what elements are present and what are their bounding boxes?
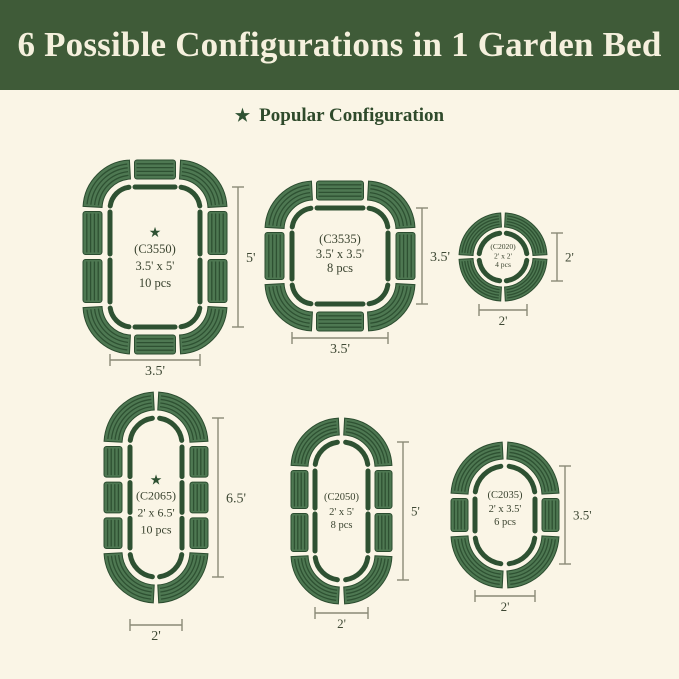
side-panel bbox=[190, 518, 208, 549]
width-dimension-label: 3.5' bbox=[330, 342, 350, 357]
side-panel bbox=[83, 212, 102, 255]
width-dimension-label: 2' bbox=[151, 629, 161, 644]
popular-legend-label: Popular Configuration bbox=[259, 105, 444, 127]
garden-bed-infographic: 6 Possible Configurations in 1 Garden Be… bbox=[0, 0, 679, 679]
bed-outline bbox=[475, 466, 535, 563]
side-panel bbox=[291, 514, 308, 552]
width-dimension-label: 2' bbox=[501, 599, 510, 614]
config-code-label: (C2020) bbox=[490, 242, 516, 251]
height-dimension-label: 5' bbox=[411, 504, 420, 519]
side-panel bbox=[104, 518, 122, 549]
config-diagram-c3535: 3.5'3.5'(C3535)3.5' x 3.5'8 pcs bbox=[250, 160, 465, 365]
height-dimension bbox=[397, 442, 409, 580]
corner-panel bbox=[83, 160, 130, 207]
side-panel bbox=[135, 160, 176, 179]
config-diagram-c2035: 3.5'2'(C2035)2' x 3.5'6 pcs bbox=[430, 438, 615, 616]
side-panel bbox=[104, 447, 122, 478]
config-code-label: (C2050) bbox=[324, 492, 360, 503]
popular-star-icon: ★ bbox=[149, 226, 162, 241]
side-panel bbox=[265, 233, 284, 280]
config-pieces-label: 8 pcs bbox=[331, 520, 353, 531]
config-code-label: (C2035) bbox=[488, 490, 524, 501]
height-dimension bbox=[232, 187, 244, 327]
corner-panel bbox=[83, 307, 130, 354]
width-dimension-label: 3.5' bbox=[145, 364, 165, 379]
side-panel bbox=[451, 499, 468, 532]
config-size-label: 2' x 3.5' bbox=[489, 504, 522, 515]
exploded-panels bbox=[451, 442, 559, 588]
corner-panel bbox=[180, 160, 227, 207]
width-dimension-label: 2' bbox=[499, 313, 508, 328]
side-panel bbox=[208, 212, 227, 255]
config-size-label: 2' x 5' bbox=[329, 507, 354, 518]
width-dimension-label: 2' bbox=[337, 616, 346, 631]
config-pieces-label: 10 pcs bbox=[139, 276, 171, 290]
corner-panel bbox=[368, 284, 415, 331]
height-dimension bbox=[551, 233, 563, 281]
side-panel bbox=[542, 499, 559, 532]
side-panel bbox=[208, 260, 227, 303]
height-dimension bbox=[416, 208, 428, 304]
header-banner: 6 Possible Configurations in 1 Garden Be… bbox=[0, 0, 679, 90]
side-panel bbox=[375, 471, 392, 509]
corner-panel bbox=[265, 284, 312, 331]
height-dimension bbox=[559, 466, 571, 564]
config-size-label: 2' x 6.5' bbox=[137, 506, 174, 520]
side-panel bbox=[317, 181, 364, 200]
config-pieces-label: 8 pcs bbox=[327, 261, 353, 275]
side-panel bbox=[291, 471, 308, 509]
config-diagram-c2065: 6.5'2'★(C2065)2' x 6.5'10 pcs bbox=[70, 390, 265, 655]
height-dimension-label: 3.5' bbox=[573, 508, 592, 523]
config-code-label: (C3535) bbox=[319, 232, 361, 246]
config-size-label: 3.5' x 5' bbox=[136, 259, 175, 273]
height-dimension bbox=[212, 418, 224, 577]
config-code-label: (C2065) bbox=[136, 489, 176, 503]
corner-panel bbox=[180, 307, 227, 354]
config-code-label: (C3550) bbox=[134, 242, 176, 256]
config-pieces-label: 6 pcs bbox=[494, 517, 516, 528]
corner-panel bbox=[368, 181, 415, 228]
popular-star-icon: ★ bbox=[150, 474, 163, 489]
bed-outline bbox=[110, 187, 200, 327]
side-panel bbox=[104, 482, 122, 513]
config-pieces-label: 4 pcs bbox=[495, 260, 511, 269]
side-panel bbox=[135, 335, 176, 354]
config-size-label: 3.5' x 3.5' bbox=[316, 247, 364, 261]
config-diagram-c2020: 2'2'(C2020)2' x 2'4 pcs bbox=[438, 185, 613, 335]
star-icon: ★ bbox=[235, 107, 250, 124]
side-panel bbox=[190, 482, 208, 513]
side-panel bbox=[317, 312, 364, 331]
config-pieces-label: 10 pcs bbox=[141, 523, 172, 537]
side-panel bbox=[396, 233, 415, 280]
side-panel bbox=[83, 260, 102, 303]
corner-panel bbox=[265, 181, 312, 228]
height-dimension-label: 2' bbox=[565, 250, 574, 265]
popular-legend: ★ Popular Configuration bbox=[0, 102, 679, 130]
config-diagram-c3550: 5'3.5'★(C3550)3.5' x 5'10 pcs bbox=[60, 150, 275, 385]
height-dimension-label: 6.5' bbox=[226, 491, 246, 506]
page-title: 6 Possible Configurations in 1 Garden Be… bbox=[17, 25, 661, 65]
side-panel bbox=[375, 514, 392, 552]
side-panel bbox=[190, 447, 208, 478]
config-diagram-c2050: 5'2'(C2050)2' x 5'8 pcs bbox=[265, 413, 450, 641]
